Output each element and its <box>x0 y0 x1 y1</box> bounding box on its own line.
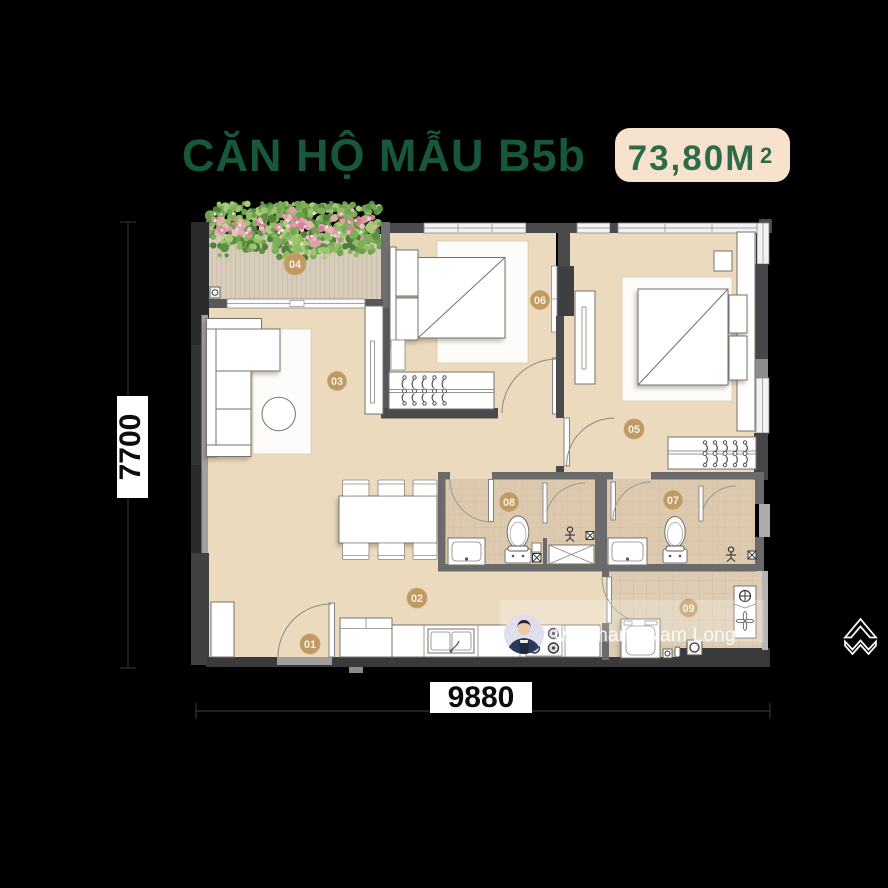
svg-text:03: 03 <box>331 376 343 388</box>
svg-text:9880: 9880 <box>448 681 515 714</box>
svg-text:08: 08 <box>503 497 515 509</box>
svg-text:05: 05 <box>628 424 640 436</box>
svg-text:04: 04 <box>289 259 301 271</box>
svg-text:02: 02 <box>411 593 423 605</box>
svg-text:2: 2 <box>760 143 772 168</box>
svg-text:07: 07 <box>667 495 679 507</box>
svg-text:01: 01 <box>304 639 316 651</box>
svg-text:73,80M: 73,80M <box>628 139 757 178</box>
svg-text:7700: 7700 <box>114 414 147 481</box>
svg-text:Mỹ Thanh Nam Long: Mỹ Thanh Nam Long <box>554 624 736 646</box>
svg-text:06: 06 <box>534 295 546 307</box>
svg-text:CĂN HỘ MẪU B5b: CĂN HỘ MẪU B5b <box>182 130 586 181</box>
